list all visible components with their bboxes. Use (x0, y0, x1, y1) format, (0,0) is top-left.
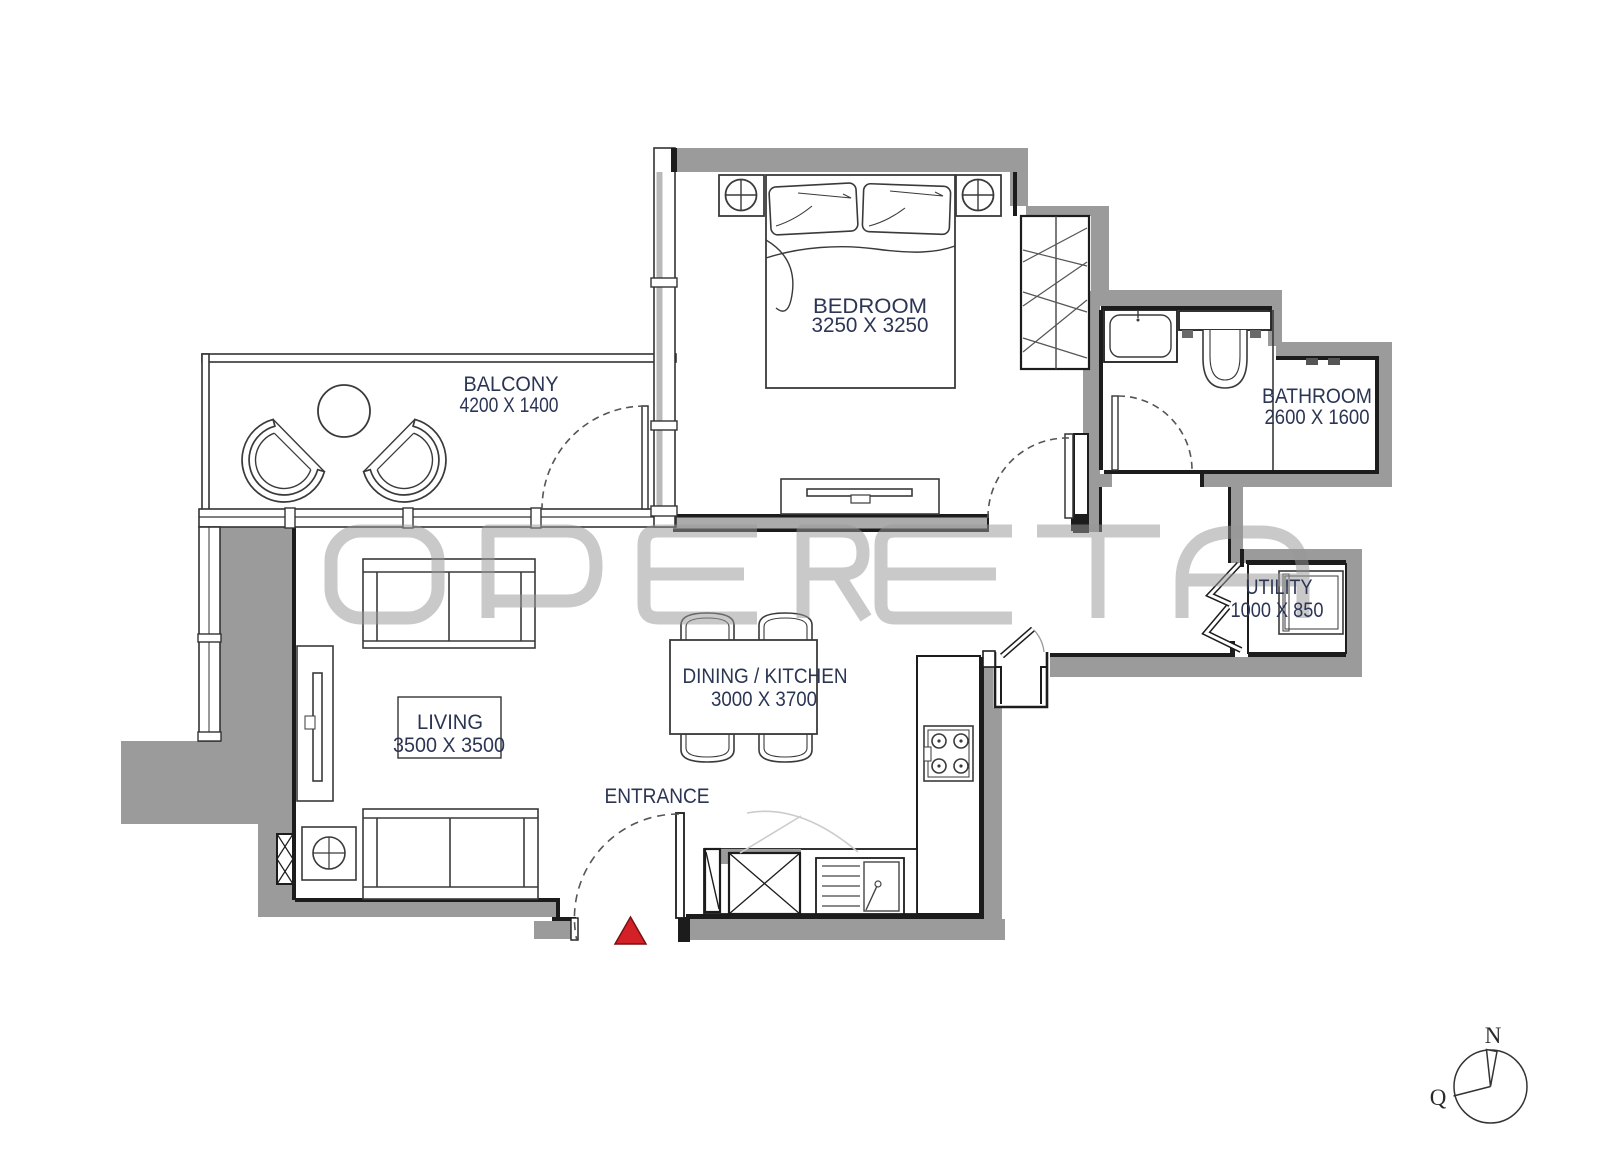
svg-text:4200 X 1400: 4200 X 1400 (460, 394, 559, 417)
svg-text:DINING / KITCHEN: DINING / KITCHEN (683, 665, 848, 688)
svg-text:Q: Q (1430, 1085, 1447, 1110)
svg-text:1000 X 850: 1000 X 850 (1231, 599, 1324, 622)
svg-text:3250 X 3250: 3250 X 3250 (812, 314, 929, 337)
svg-text:3000 X 3700: 3000 X 3700 (711, 688, 817, 711)
svg-text:UTILITY: UTILITY (1246, 576, 1313, 599)
svg-text:2600 X 1600: 2600 X 1600 (1265, 406, 1370, 429)
svg-text:LIVING: LIVING (417, 711, 483, 734)
svg-text:BATHROOM: BATHROOM (1262, 385, 1372, 408)
svg-text:N: N (1485, 1023, 1502, 1048)
svg-text:BALCONY: BALCONY (464, 373, 559, 396)
svg-text:3500 X 3500: 3500 X 3500 (393, 734, 505, 757)
svg-text:ENTRANCE: ENTRANCE (605, 785, 710, 808)
